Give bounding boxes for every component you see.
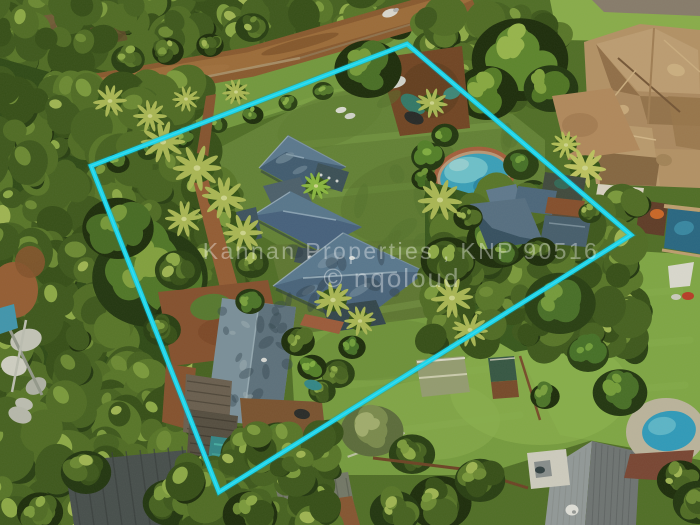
- svg-text:Kannan Properties , KNP 90516: Kannan Properties , KNP 90516: [203, 238, 600, 264]
- svg-text:© nqoloud: © nqoloud: [324, 263, 461, 293]
